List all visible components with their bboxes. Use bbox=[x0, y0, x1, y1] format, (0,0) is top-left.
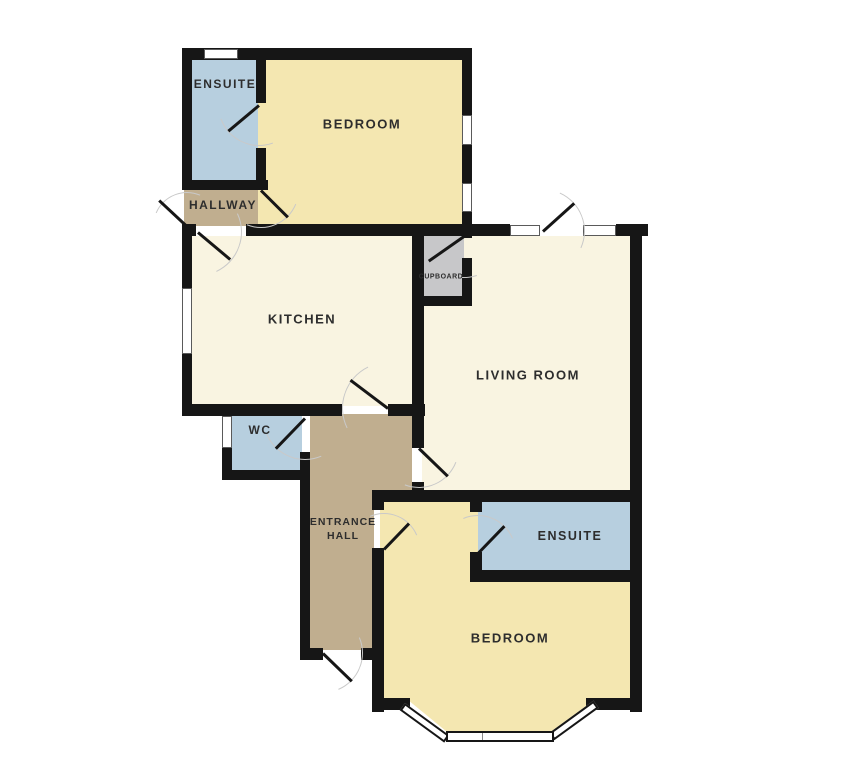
wall-front-b bbox=[361, 648, 383, 660]
wall-living-bottom bbox=[374, 490, 642, 502]
window-ensuite-top bbox=[204, 49, 238, 59]
wall-wc-bottom bbox=[222, 470, 310, 480]
wall-ensuite-bottom-left-a bbox=[470, 502, 482, 512]
wall-right bbox=[630, 224, 642, 712]
wall-cupboard-bottom bbox=[412, 296, 472, 306]
wall-bedroom-bottom-left-a bbox=[372, 490, 384, 510]
window-bay-center bbox=[446, 731, 554, 742]
kitchen-label: KITCHEN bbox=[268, 312, 336, 327]
wall-left-ensuite bbox=[182, 48, 192, 188]
ensuite-bottom-label: ENSUITE bbox=[538, 529, 603, 543]
cupboard-label: CUPBOARD bbox=[419, 274, 463, 281]
window-bay-divider bbox=[482, 733, 483, 740]
floor-plan: ENSUITE BEDROOM HALLWAY KITCHEN CUPBOARD… bbox=[0, 0, 850, 759]
window-wc bbox=[222, 416, 232, 448]
window-kitchen bbox=[182, 288, 192, 354]
window-bedroom-top-1 bbox=[462, 115, 472, 145]
living-room-label: LIVING ROOM bbox=[476, 368, 580, 383]
entrance-hall-label-line2: HALL bbox=[310, 529, 376, 543]
ensuite-top-label: ENSUITE bbox=[194, 77, 257, 91]
entrance-hall-label: ENTRANCE HALL bbox=[310, 515, 376, 543]
bedroom-top-label: BEDROOM bbox=[323, 117, 401, 132]
window-living-2 bbox=[583, 225, 616, 236]
bedroom-bottom-label: BEDROOM bbox=[471, 631, 549, 646]
entrance-hall-label-line1: ENTRANCE bbox=[310, 515, 376, 529]
wc-label: WC bbox=[249, 423, 272, 437]
hallway-label: HALLWAY bbox=[189, 198, 257, 212]
